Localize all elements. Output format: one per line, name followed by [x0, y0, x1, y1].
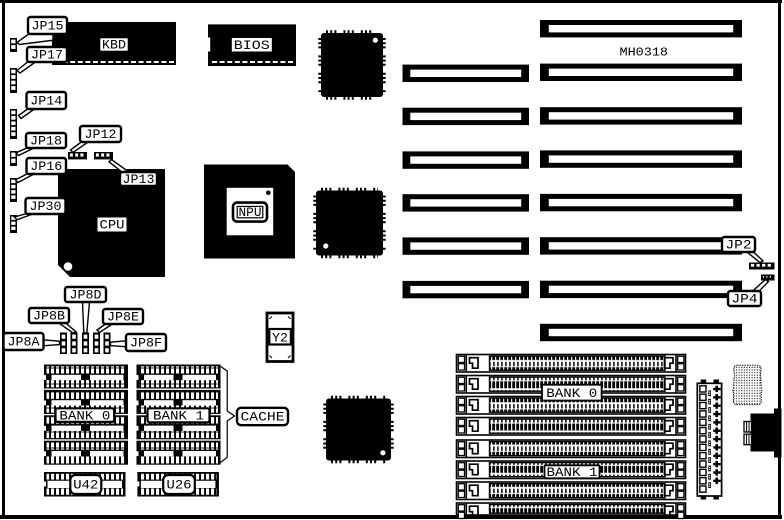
svg-text:CACHE: CACHE [241, 411, 285, 425]
svg-text:JP4: JP4 [732, 293, 758, 307]
svg-text:BANK 0: BANK 0 [59, 409, 110, 423]
svg-text:CPU: CPU [100, 219, 125, 233]
svg-text:JP17: JP17 [31, 49, 63, 63]
svg-text:JP8B: JP8B [33, 310, 66, 324]
svg-text:BANK 1: BANK 1 [547, 466, 598, 480]
svg-text:JP16: JP16 [30, 160, 62, 174]
svg-text:U26: U26 [167, 479, 192, 493]
svg-text:JP15: JP15 [32, 20, 64, 34]
svg-text:KBD: KBD [102, 39, 126, 53]
svg-text:Y2: Y2 [272, 331, 288, 345]
svg-text:JP18: JP18 [30, 135, 62, 149]
svg-text:JP8E: JP8E [107, 311, 139, 325]
svg-text:JP8A: JP8A [8, 336, 41, 350]
svg-text:JP8D: JP8D [70, 289, 102, 303]
svg-text:JP8F: JP8F [130, 337, 162, 351]
svg-text:JP14: JP14 [30, 95, 62, 109]
svg-text:NPU: NPU [239, 206, 262, 220]
svg-text:JP30: JP30 [30, 200, 62, 214]
svg-text:MH0318: MH0318 [620, 46, 669, 60]
svg-text:JP13: JP13 [123, 173, 155, 187]
svg-text:BIOS: BIOS [234, 39, 270, 53]
svg-text:JP12: JP12 [85, 128, 117, 142]
svg-text:U42: U42 [73, 479, 98, 493]
svg-text:BANK 1: BANK 1 [153, 410, 204, 424]
svg-text:BANK 0: BANK 0 [546, 387, 597, 401]
svg-text:JP2: JP2 [726, 239, 752, 253]
